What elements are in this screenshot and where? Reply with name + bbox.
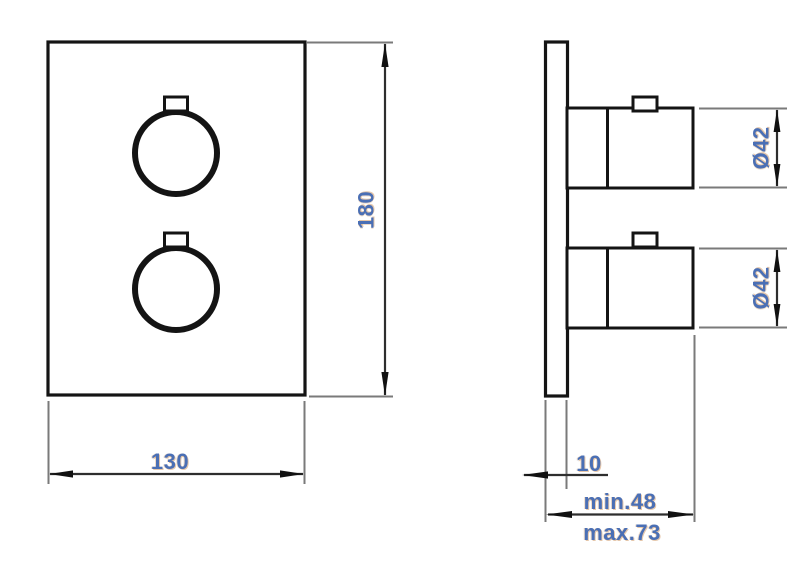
dimension-height-180: 180: [307, 43, 393, 397]
bottom-knob-diameter-label: Ø42: [749, 266, 774, 309]
side-top-knob-indicator-tab: [633, 97, 657, 111]
install-depth-min-label: min.48: [584, 489, 657, 514]
install-depth-max-label: max.73: [583, 520, 661, 545]
side-top-knob-body: [567, 108, 693, 188]
plate-thickness-label: 10: [576, 451, 601, 476]
dimension-bottom-knob-diameter: Ø42: [699, 249, 787, 328]
front-view: [48, 42, 305, 395]
top-knob-diameter-label: Ø42: [749, 126, 774, 169]
width-dimension-label: 130: [151, 449, 189, 474]
technical-drawing-page: 180 130: [0, 0, 800, 567]
height-dimension-label: 180: [354, 191, 379, 229]
side-bottom-knob-body: [567, 248, 693, 328]
height-arrow-up-icon: [381, 43, 388, 67]
dimension-top-knob-diameter: Ø42: [699, 109, 787, 188]
front-top-knob-indicator-tab: [165, 97, 188, 111]
depth-arrow-left-icon: [546, 511, 572, 518]
front-panel-plate: [48, 42, 305, 395]
thickness-arrow-left-icon: [522, 471, 548, 478]
side-view: [546, 42, 694, 396]
depth-arrow-right-icon: [668, 511, 694, 518]
dimension-drawing-canvas: 180 130: [0, 0, 800, 567]
side-bottom-knob-indicator-tab: [633, 233, 657, 247]
top-diameter-arrow-down-icon: [774, 164, 781, 187]
front-bottom-knob-indicator-tab: [165, 233, 188, 247]
front-bottom-knob-ring: [135, 248, 217, 330]
width-arrow-right-icon: [280, 470, 304, 477]
width-arrow-left-icon: [49, 470, 73, 477]
top-diameter-arrow-up-icon: [774, 109, 781, 132]
bottom-diameter-arrow-down-icon: [774, 304, 781, 327]
dimension-width-130: 130: [49, 401, 305, 484]
height-arrow-down-icon: [381, 372, 388, 396]
bottom-diameter-arrow-up-icon: [774, 249, 781, 272]
side-wall-plate: [546, 42, 568, 396]
front-top-knob-ring: [135, 112, 217, 194]
